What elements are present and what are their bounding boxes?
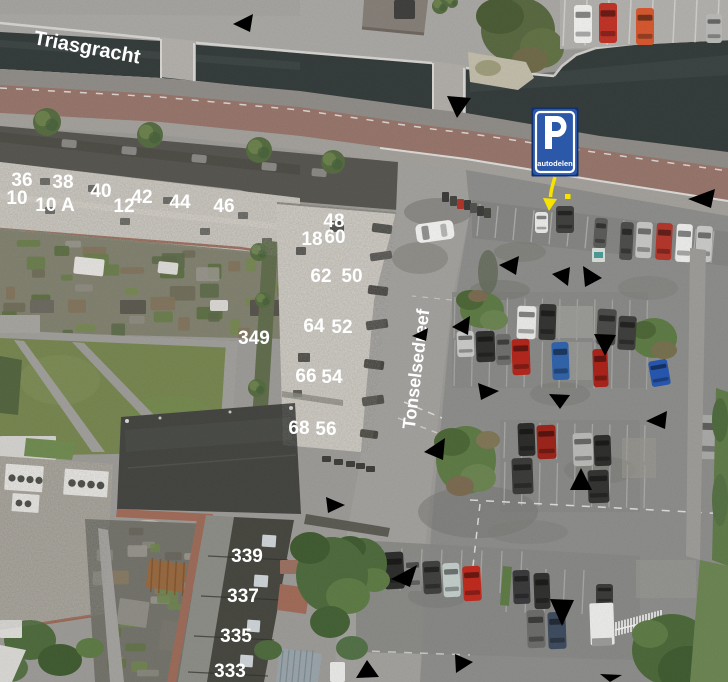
svg-text:66: 66 [295,366,316,387]
svg-text:339: 339 [231,546,263,567]
svg-text:10: 10 [6,188,27,209]
svg-text:18: 18 [301,229,322,250]
svg-text:335: 335 [220,626,252,647]
svg-text:349: 349 [238,328,270,349]
svg-text:62: 62 [310,266,331,287]
svg-text:56: 56 [315,419,336,440]
svg-text:40: 40 [90,181,111,202]
svg-text:54: 54 [321,367,343,388]
svg-text:42: 42 [131,187,152,208]
svg-text:46: 46 [213,196,234,217]
svg-text:38: 38 [52,172,73,193]
svg-text:64: 64 [303,316,325,337]
svg-text:68: 68 [288,418,309,439]
svg-text:52: 52 [331,317,352,338]
svg-text:337: 337 [227,586,259,607]
svg-text:333: 333 [214,661,246,682]
svg-text:50: 50 [341,266,362,287]
svg-text:10 A: 10 A [35,195,75,216]
svg-text:44: 44 [169,192,191,213]
svg-text:60: 60 [324,227,345,248]
svg-text:autodelen: autodelen [537,159,573,168]
